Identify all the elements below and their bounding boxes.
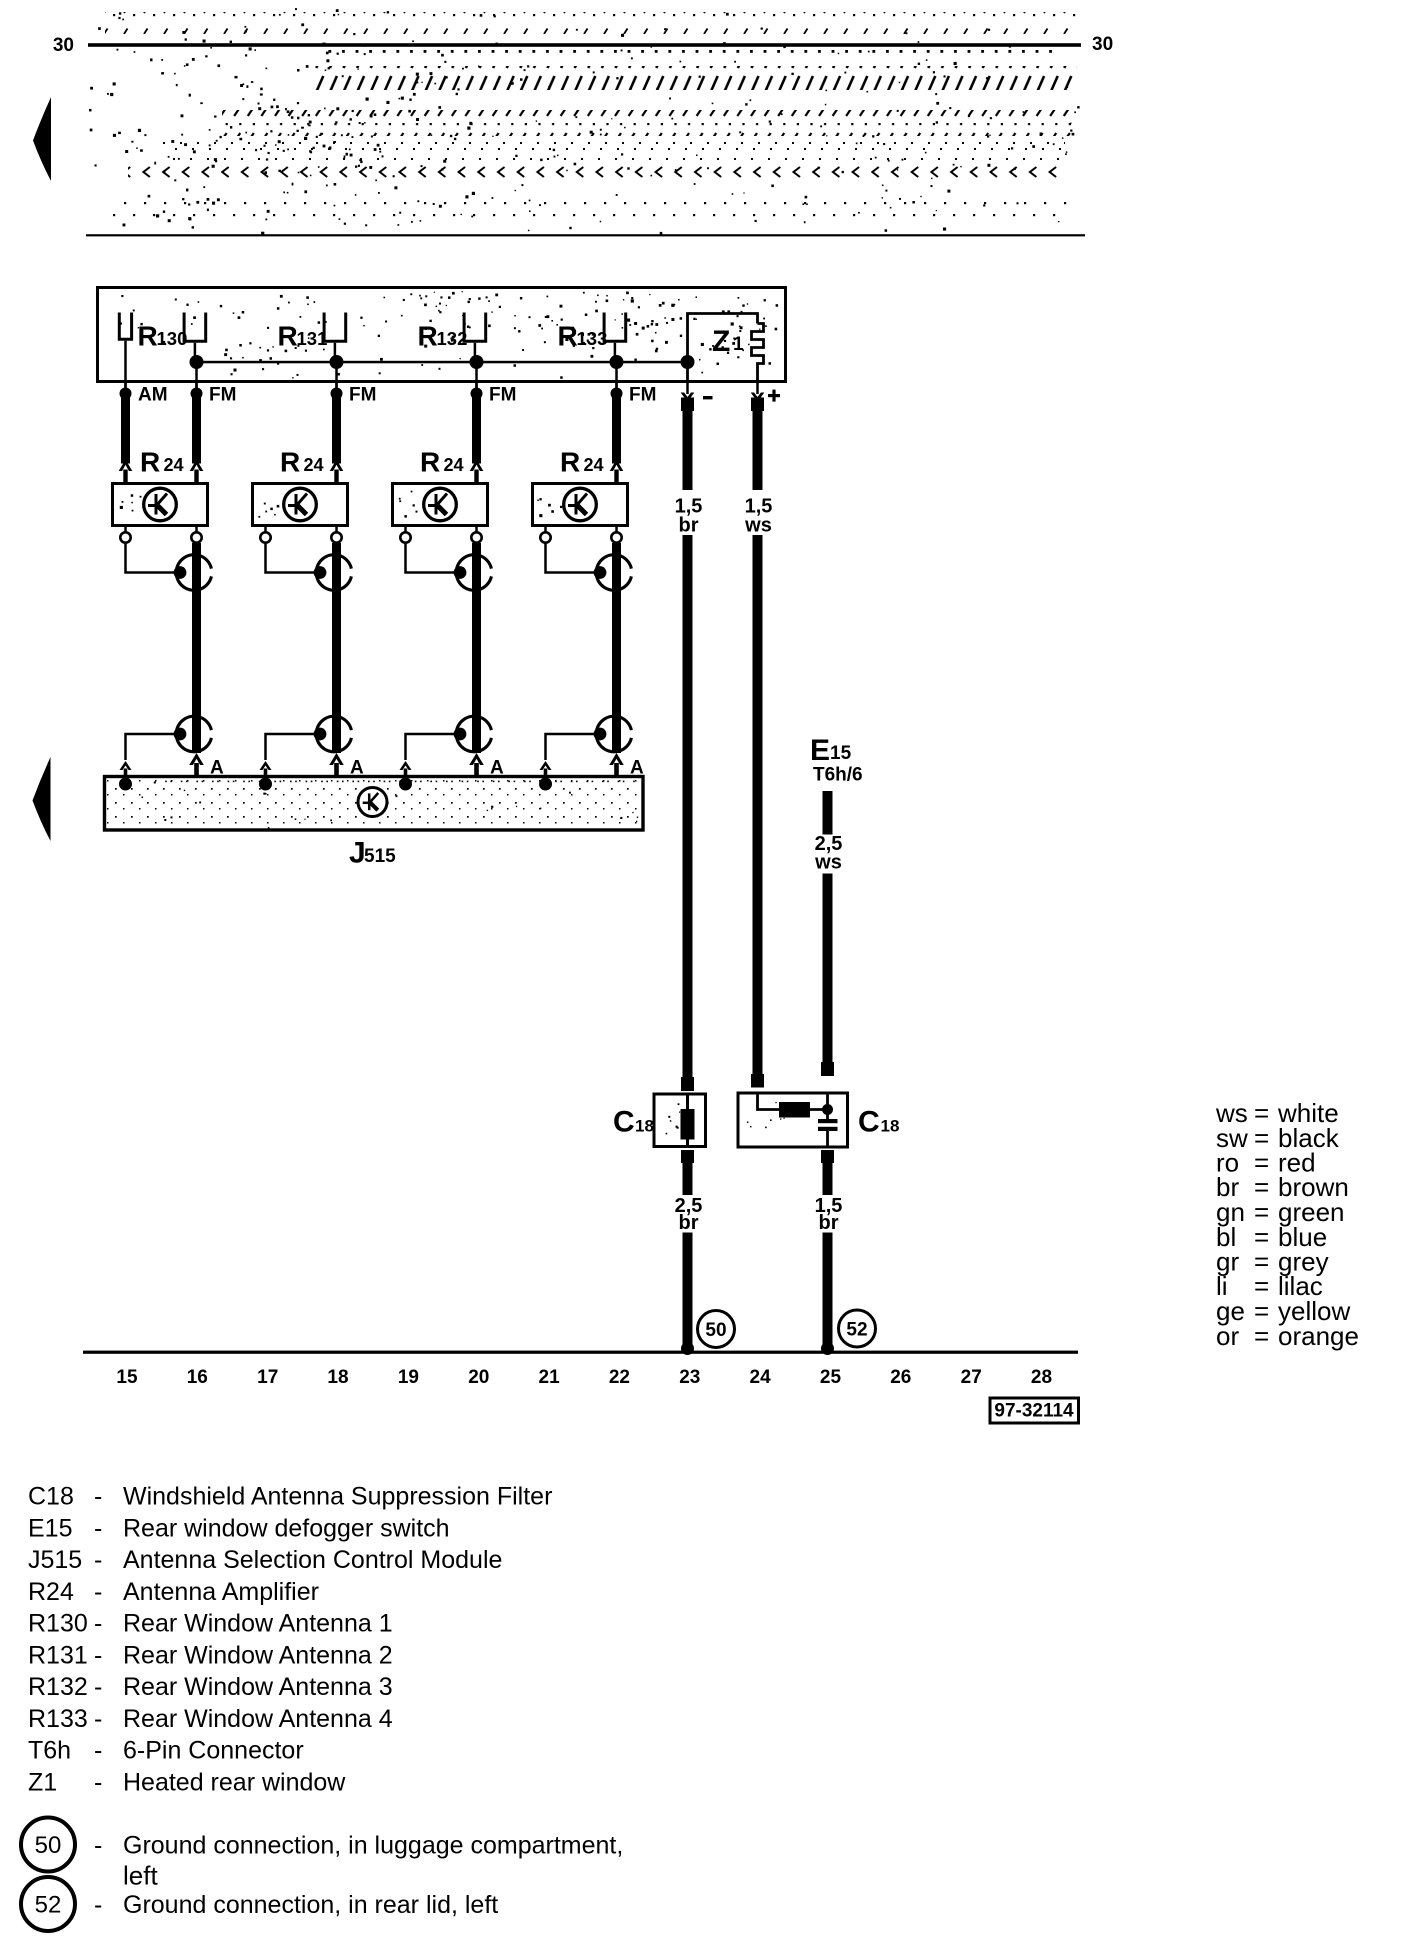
svg-text:6-Pin Connector: 6-Pin Connector xyxy=(123,1737,304,1765)
svg-text:Rear Window Antenna 2: Rear Window Antenna 2 xyxy=(123,1641,393,1669)
svg-text:R24: R24 xyxy=(28,1578,74,1606)
svg-text:-: - xyxy=(94,1546,102,1574)
svg-text:R132: R132 xyxy=(28,1673,88,1701)
svg-text:E15: E15 xyxy=(28,1514,72,1542)
svg-text:24: 24 xyxy=(584,455,604,475)
svg-text:Antenna Amplifier: Antenna Amplifier xyxy=(123,1578,319,1606)
svg-text:C: C xyxy=(613,1106,635,1139)
svg-text:br: br xyxy=(679,515,699,537)
svg-text:FM: FM xyxy=(209,385,236,406)
svg-text:19: 19 xyxy=(398,1367,419,1388)
svg-text:-: - xyxy=(94,1832,102,1860)
svg-text:15: 15 xyxy=(116,1367,138,1388)
svg-text:-: - xyxy=(94,1705,102,1733)
svg-text:Rear Window Antenna 4: Rear Window Antenna 4 xyxy=(123,1705,393,1733)
svg-text:FM: FM xyxy=(629,385,656,406)
svg-text:Antenna Selection Control Modu: Antenna Selection Control Module xyxy=(123,1546,502,1574)
svg-text:R130: R130 xyxy=(28,1610,88,1638)
svg-text:ws: ws xyxy=(814,852,842,874)
svg-text:R133: R133 xyxy=(28,1705,88,1733)
svg-text:Rear Window Antenna 1: Rear Window Antenna 1 xyxy=(123,1610,393,1638)
svg-text:C: C xyxy=(858,1106,880,1139)
svg-text:-: - xyxy=(94,1891,102,1919)
svg-text:15: 15 xyxy=(830,743,852,764)
svg-text:-: - xyxy=(94,1768,102,1796)
svg-text:-: - xyxy=(94,1578,102,1606)
svg-text:-: - xyxy=(94,1737,102,1765)
svg-text:16: 16 xyxy=(187,1367,208,1388)
svg-text:20: 20 xyxy=(468,1367,489,1388)
svg-text:97-32114: 97-32114 xyxy=(994,1401,1074,1422)
svg-text:50: 50 xyxy=(35,1832,62,1859)
svg-text:17: 17 xyxy=(257,1367,278,1388)
svg-text:orange: orange xyxy=(1278,1321,1359,1351)
svg-text:-: - xyxy=(94,1483,102,1511)
svg-text:18: 18 xyxy=(635,1117,654,1136)
svg-text:T6h: T6h xyxy=(28,1737,71,1765)
svg-text:R131: R131 xyxy=(28,1641,88,1669)
svg-text:J515: J515 xyxy=(28,1546,82,1574)
svg-text:132: 132 xyxy=(437,328,468,349)
svg-text:18: 18 xyxy=(881,1117,900,1136)
svg-text:R: R xyxy=(138,321,158,352)
svg-text:50: 50 xyxy=(705,1320,726,1341)
svg-text:Rear window defogger switch: Rear window defogger switch xyxy=(123,1514,450,1542)
svg-text:28: 28 xyxy=(1031,1367,1052,1388)
svg-text:25: 25 xyxy=(820,1367,842,1388)
svg-text:or: or xyxy=(1216,1321,1239,1351)
svg-text:22: 22 xyxy=(609,1367,630,1388)
svg-text:Heated rear window: Heated rear window xyxy=(123,1768,346,1796)
svg-text:24: 24 xyxy=(444,455,464,475)
svg-text:-: - xyxy=(94,1641,102,1669)
svg-text:131: 131 xyxy=(297,328,328,349)
svg-text:FM: FM xyxy=(489,385,516,406)
svg-text:Ground connection, in rear lid: Ground connection, in rear lid, left xyxy=(123,1891,498,1919)
svg-text:52: 52 xyxy=(846,1320,867,1341)
svg-text:23: 23 xyxy=(679,1367,700,1388)
svg-text:24: 24 xyxy=(750,1367,772,1388)
svg-text:133: 133 xyxy=(577,328,608,349)
svg-text:18: 18 xyxy=(327,1367,348,1388)
svg-text:left: left xyxy=(123,1861,158,1891)
svg-text:Z1: Z1 xyxy=(28,1768,57,1796)
svg-text:Windshield Antenna Suppression: Windshield Antenna Suppression Filter xyxy=(123,1483,552,1511)
svg-text:FM: FM xyxy=(349,385,376,406)
svg-text:-: - xyxy=(94,1673,102,1701)
svg-text:R: R xyxy=(278,321,298,352)
svg-text:AM: AM xyxy=(138,385,168,406)
svg-text:-: - xyxy=(94,1610,102,1638)
svg-text:52: 52 xyxy=(35,1892,62,1919)
svg-text:27: 27 xyxy=(961,1367,982,1388)
svg-text:R: R xyxy=(418,321,438,352)
svg-text:30: 30 xyxy=(1092,34,1113,55)
svg-text:30: 30 xyxy=(53,35,74,56)
svg-text:515: 515 xyxy=(364,846,396,867)
svg-text:R: R xyxy=(558,321,578,352)
svg-text:R: R xyxy=(420,447,440,478)
svg-text:Rear Window Antenna 3: Rear Window Antenna 3 xyxy=(123,1673,393,1701)
svg-text:E: E xyxy=(810,734,830,767)
svg-text:Ground connection, in luggage: Ground connection, in luggage compartmen… xyxy=(123,1832,623,1860)
svg-text:R: R xyxy=(560,447,580,478)
svg-text:24: 24 xyxy=(304,455,324,475)
svg-text:R: R xyxy=(140,447,160,478)
svg-text:br: br xyxy=(819,1212,839,1234)
svg-text:21: 21 xyxy=(539,1367,561,1388)
svg-text:C18: C18 xyxy=(28,1483,74,1511)
svg-text:26: 26 xyxy=(890,1367,911,1388)
svg-text:24: 24 xyxy=(164,455,184,475)
svg-text:br: br xyxy=(679,1212,699,1234)
svg-text:T6h/6: T6h/6 xyxy=(813,765,863,786)
svg-text:ws: ws xyxy=(744,515,772,537)
svg-text:-: - xyxy=(94,1514,102,1542)
svg-text:130: 130 xyxy=(157,328,188,349)
svg-text:R: R xyxy=(280,447,300,478)
svg-text:=: = xyxy=(1254,1321,1269,1351)
